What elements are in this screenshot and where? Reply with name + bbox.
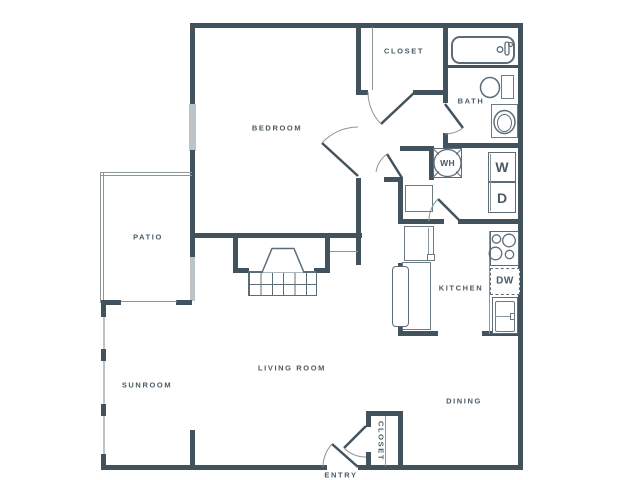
- closet-door-arc: [368, 92, 381, 124]
- sunroom-window: [103, 317, 105, 349]
- entry-door-arc: [323, 444, 332, 467]
- entry-closet-wall-right: [398, 411, 403, 468]
- patio-sliding-door: [190, 257, 195, 301]
- closet-interior-line: [372, 27, 373, 90]
- label-sunroom: SUNROOM: [122, 381, 172, 390]
- toilet-bowl: [481, 78, 500, 98]
- washer-dryer-door-line: [490, 154, 491, 211]
- patio-wall-west-inner: [103, 172, 104, 303]
- label-bath: BATH: [458, 97, 485, 106]
- label-entry-closet: CLOSET: [377, 421, 386, 461]
- wall-bottom-left: [101, 465, 327, 470]
- toilet-tank: [501, 75, 514, 99]
- patio-wall-north-outer: [100, 172, 192, 173]
- sunroom-window: [103, 416, 105, 454]
- label-water-heater: WH: [440, 158, 455, 168]
- label-patio: PATIO: [133, 233, 163, 242]
- wall-bottom-right: [358, 465, 523, 470]
- wall-hall-nook-left: [398, 182, 403, 224]
- wall-wh-nook-top: [400, 146, 432, 151]
- wall-closet-west: [356, 23, 361, 92]
- hall-door-arc: [376, 154, 387, 172]
- fireplace-wall-right: [325, 238, 330, 272]
- fireplace-firebox: [262, 249, 304, 273]
- label-washer: W: [495, 159, 508, 175]
- fixture-and-door-overlay: [0, 0, 640, 480]
- wall-tub: [445, 65, 518, 68]
- wall-hall-south: [398, 219, 444, 224]
- entry-closet-wall-left-upper: [366, 411, 371, 427]
- sunroom-wall-chunk: [101, 404, 106, 416]
- label-living-room: LIVING ROOM: [258, 364, 326, 373]
- closet-door-leaf: [381, 92, 415, 124]
- wall-closet-south-right: [413, 90, 447, 95]
- bedroom-window: [189, 104, 196, 151]
- sunroom-window: [103, 361, 105, 404]
- fireplace-hearth: [248, 271, 317, 296]
- wall-bath-west-upper: [443, 23, 448, 103]
- bedroom-door-leaf: [322, 143, 358, 176]
- entry-door-leaf: [332, 444, 358, 467]
- fireplace-stub-left: [233, 268, 249, 273]
- wall-laundry-south: [458, 219, 518, 224]
- entry-closet-door-leaf: [344, 426, 366, 448]
- hall-door-leaf: [387, 154, 402, 178]
- sunroom-wall-chunk: [101, 454, 106, 468]
- stove: [490, 231, 519, 266]
- floor-plan: BEDROOM CLOSET BATH KITCHEN DINING LIVIN…: [0, 0, 640, 480]
- entry-closet-wall-left-lower: [366, 452, 371, 468]
- refrigerator-handle: [427, 254, 435, 261]
- label-bedroom: BEDROOM: [252, 124, 302, 133]
- label-dishwasher: DW: [496, 276, 514, 287]
- fireplace-wall-left: [233, 238, 238, 272]
- wall-bedroom-west-upper: [190, 23, 195, 105]
- wall-bedroom-south: [190, 233, 362, 238]
- label-bedroom-closet: CLOSET: [384, 47, 424, 56]
- label-kitchen: KITCHEN: [439, 284, 484, 293]
- sunroom-north-window: [121, 301, 177, 302]
- patio-wall-north-inner: [100, 175, 192, 176]
- sunroom-east-stub: [190, 430, 195, 468]
- kitchen-counter-end: [392, 266, 409, 327]
- bathtub: [451, 36, 515, 64]
- shelf-line: [330, 251, 358, 252]
- entry-closet-door-arc: [344, 448, 366, 457]
- patio-south-stub-right: [176, 300, 192, 305]
- label-dining: DINING: [446, 397, 482, 406]
- patio-wall-west-outer: [100, 172, 101, 303]
- sunroom-wall-chunk: [101, 349, 106, 361]
- bedroom-door-arc: [322, 127, 358, 143]
- kitchen-sink-faucet: [510, 313, 515, 320]
- hall-cabinet: [405, 185, 433, 212]
- vanity-counter: [491, 104, 518, 138]
- wall-bedroom-west-lower: [190, 150, 195, 257]
- label-entry: ENTRY: [324, 471, 357, 480]
- label-dryer: D: [497, 190, 507, 206]
- wall-closet-south-left: [356, 90, 368, 95]
- sunroom-wall-chunk: [101, 300, 106, 317]
- wall-kitchen-south-left: [398, 331, 438, 336]
- kitchen-door-leaf: [438, 199, 460, 221]
- bath-door-leaf: [445, 104, 463, 128]
